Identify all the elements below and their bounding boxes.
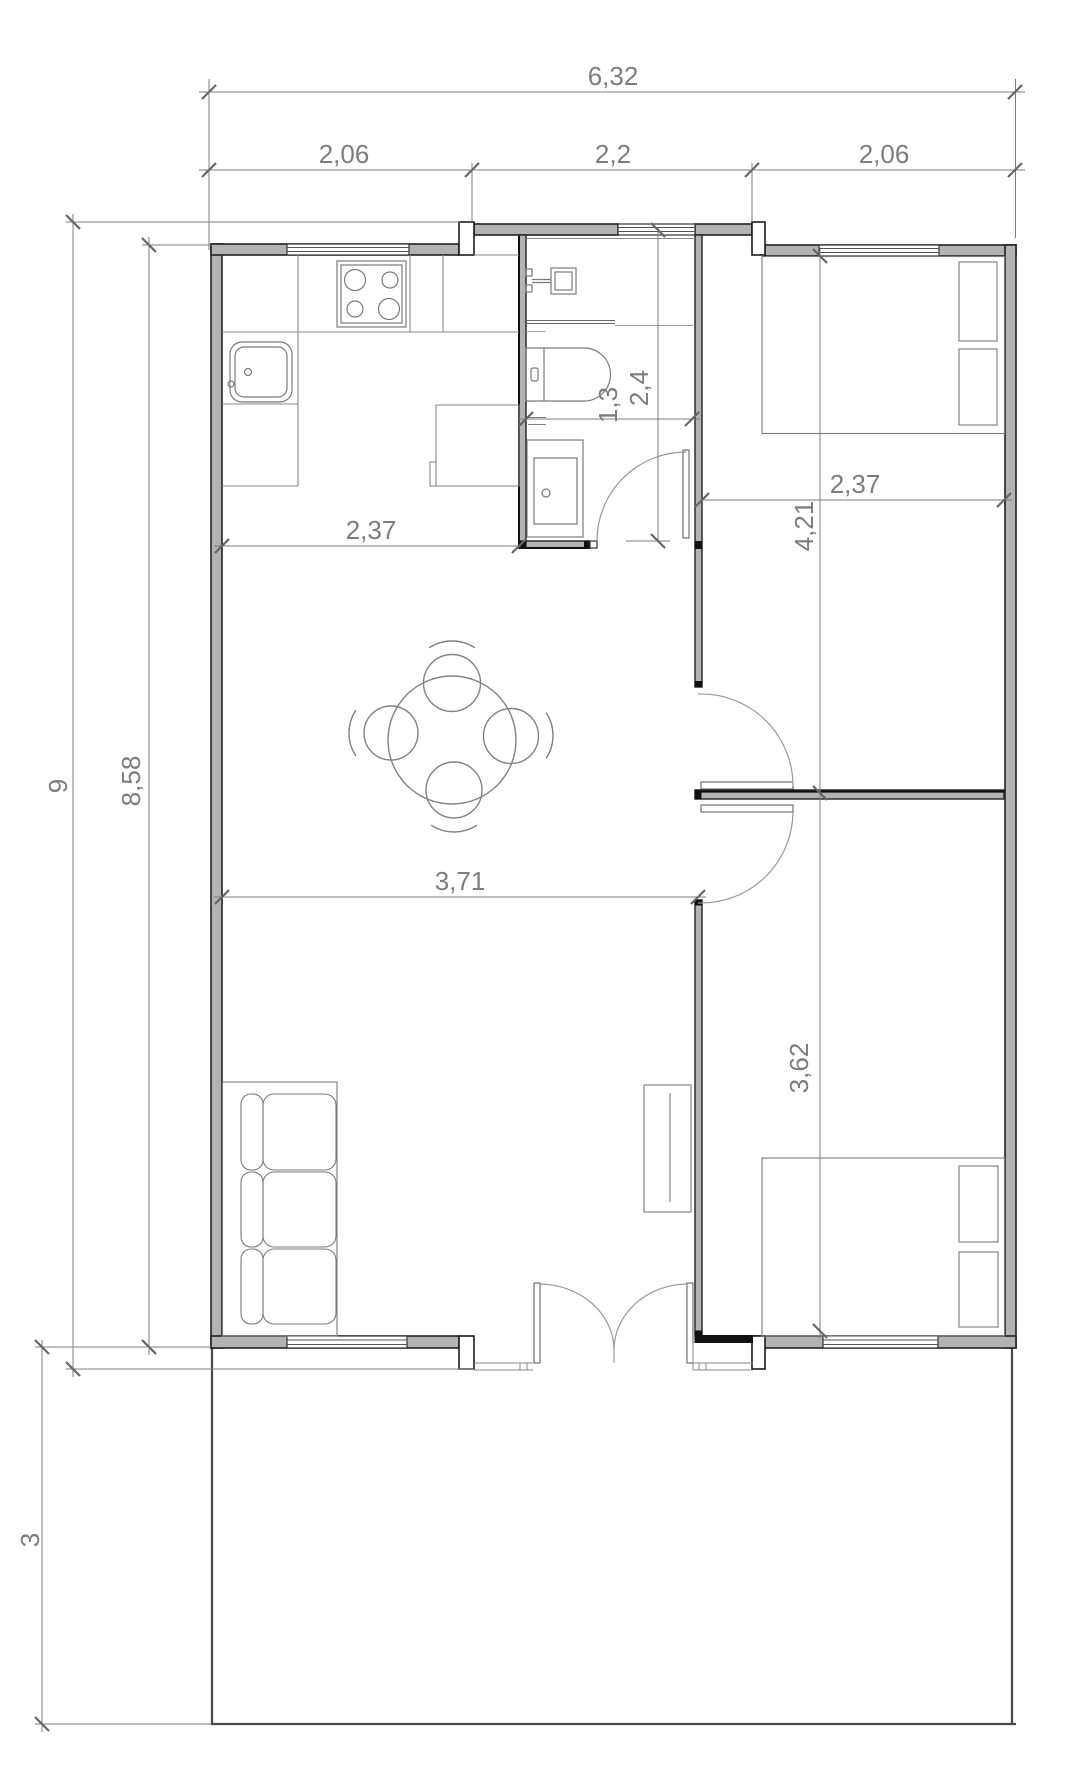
svg-text:2,06: 2,06 bbox=[859, 139, 910, 169]
svg-text:4,21: 4,21 bbox=[789, 501, 819, 552]
svg-text:8,58: 8,58 bbox=[116, 756, 146, 807]
svg-text:2,2: 2,2 bbox=[595, 139, 631, 169]
svg-text:3: 3 bbox=[15, 1533, 45, 1547]
svg-text:6,32: 6,32 bbox=[588, 61, 639, 91]
svg-text:1,3: 1,3 bbox=[593, 387, 623, 423]
svg-text:3,71: 3,71 bbox=[435, 866, 486, 896]
svg-text:2,06: 2,06 bbox=[319, 139, 370, 169]
svg-text:9: 9 bbox=[43, 779, 73, 793]
svg-text:2,37: 2,37 bbox=[830, 469, 881, 499]
svg-text:2,37: 2,37 bbox=[346, 515, 397, 545]
svg-text:2,4: 2,4 bbox=[624, 370, 654, 406]
svg-text:3,62: 3,62 bbox=[784, 1043, 814, 1094]
